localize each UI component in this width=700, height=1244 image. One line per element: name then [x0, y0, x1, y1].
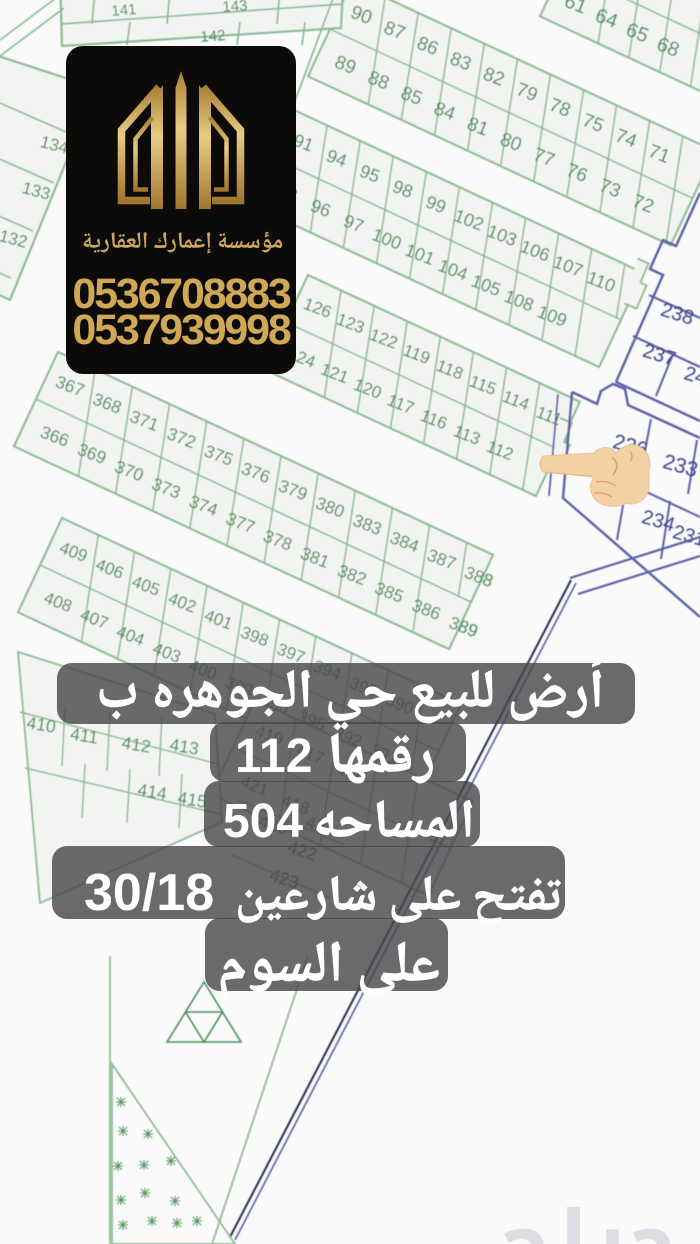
- svg-text:30/18: 30/18: [84, 864, 214, 922]
- svg-text:0537939998: 0537939998: [72, 306, 290, 354]
- svg-text:142: 142: [200, 27, 226, 46]
- svg-text:504: 504: [223, 795, 303, 848]
- svg-text:143: 143: [222, 0, 248, 16]
- svg-text:112: 112: [235, 730, 312, 783]
- svg-text:141: 141: [111, 1, 137, 20]
